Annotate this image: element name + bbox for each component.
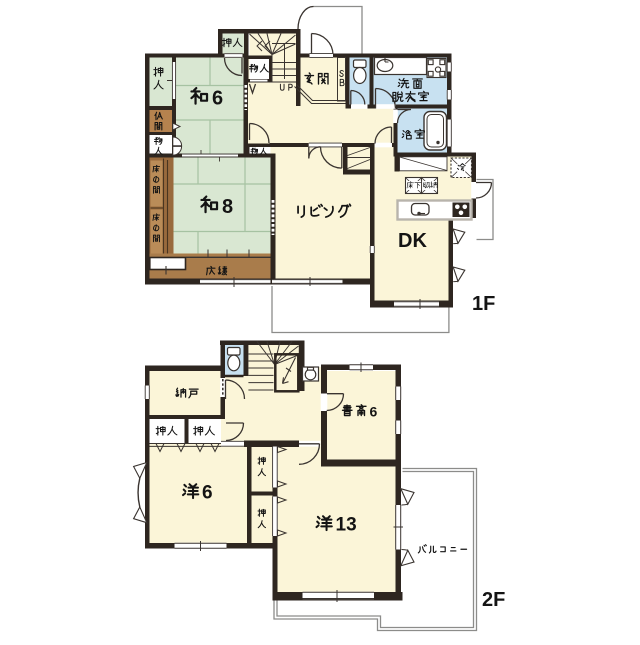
svg-text:6: 6 (212, 88, 223, 110)
svg-text:DK: DK (398, 230, 427, 252)
svg-text:1F: 1F (472, 293, 495, 315)
svg-text:8: 8 (222, 196, 233, 218)
svg-text:6: 6 (370, 404, 378, 420)
svg-text:2F: 2F (482, 589, 505, 611)
svg-text:13: 13 (336, 515, 357, 536)
svg-text:6: 6 (202, 483, 213, 504)
